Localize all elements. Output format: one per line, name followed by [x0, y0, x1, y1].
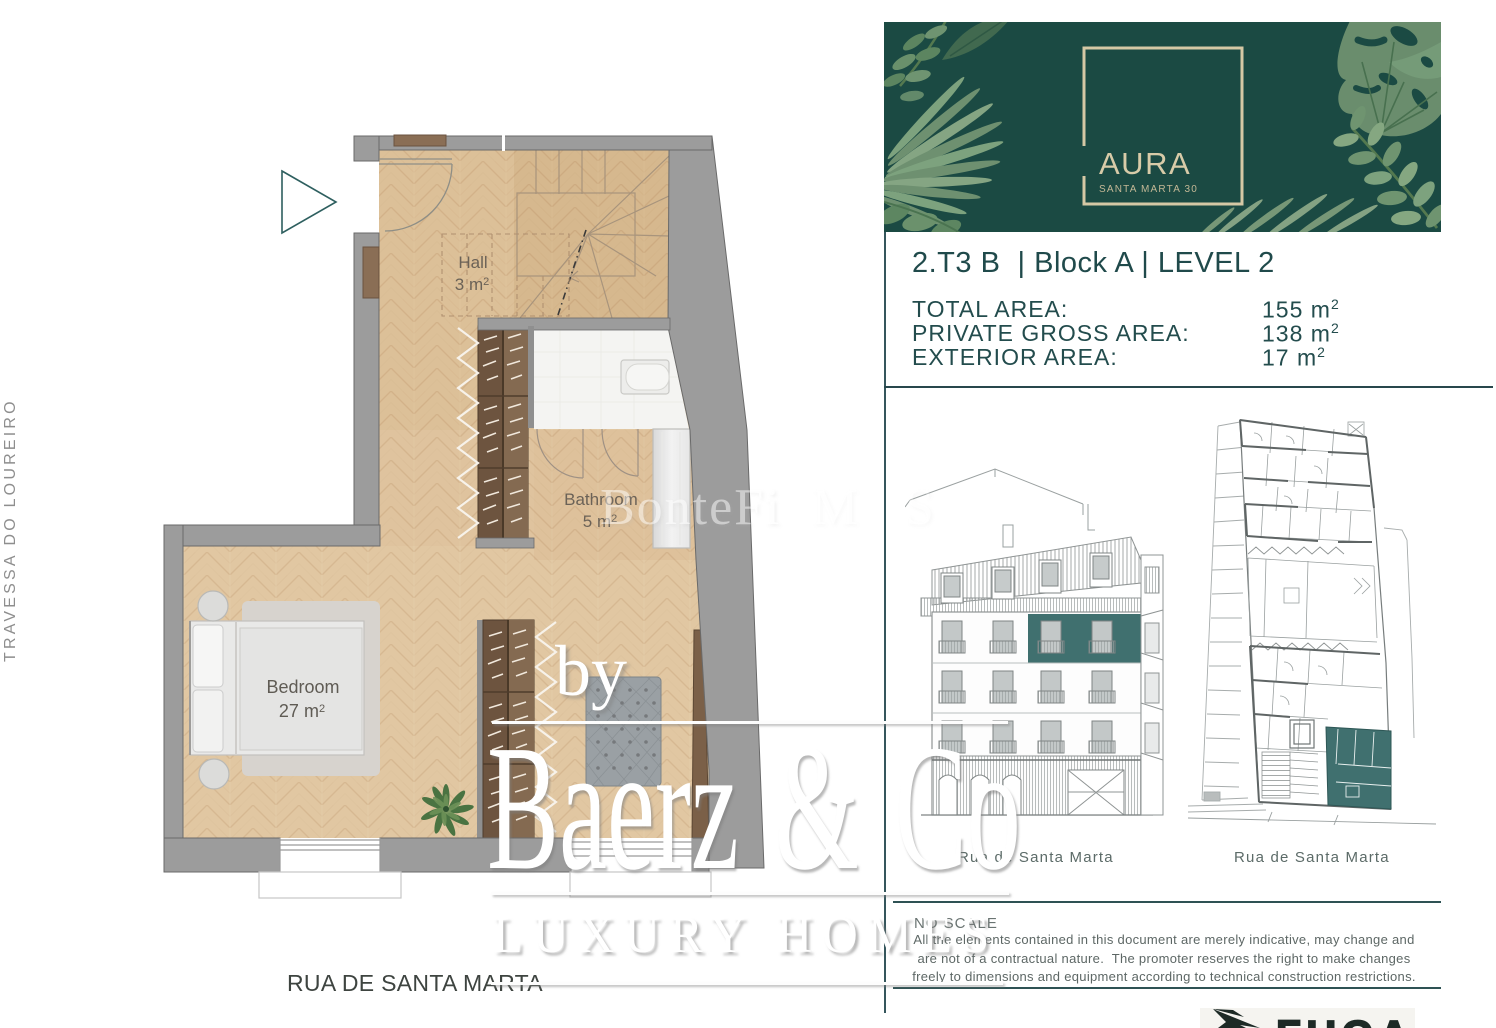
svg-text:FUGA: FUGA	[1276, 1012, 1414, 1028]
svg-text:27 m2: 27 m2	[279, 701, 325, 721]
svg-text:SANTA MARTA 30: SANTA MARTA 30	[1099, 184, 1198, 195]
svg-text:AURA: AURA	[1099, 146, 1191, 181]
svg-text:Bedroom: Bedroom	[266, 677, 339, 697]
svg-text:Hall: Hall	[458, 253, 487, 272]
